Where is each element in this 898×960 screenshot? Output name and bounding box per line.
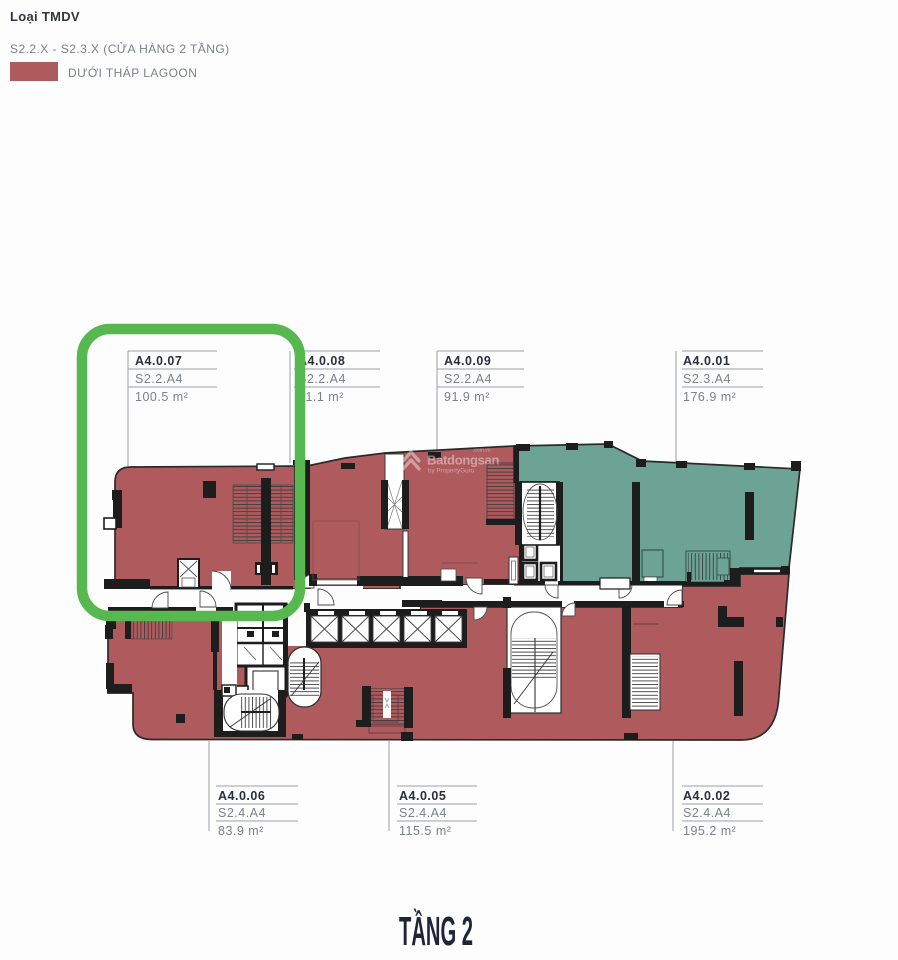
svg-text:S2.2.A4: S2.2.A4 — [135, 372, 183, 386]
svg-text:S2.2.X - S2.3.X (CỬA HÀNG 2 TẦ: S2.2.X - S2.3.X (CỬA HÀNG 2 TẦNG) — [10, 41, 230, 56]
svg-text:Loại TMDV: Loại TMDV — [10, 9, 80, 24]
svg-text:A4.0.01: A4.0.01 — [683, 354, 730, 368]
svg-text:S2.4.A4: S2.4.A4 — [683, 806, 731, 820]
svg-text:115.5 m²: 115.5 m² — [399, 824, 451, 838]
svg-text:by PropertyGuru: by PropertyGuru — [428, 468, 475, 475]
svg-text:TẦNG 2: TẦNG 2 — [399, 908, 473, 954]
svg-text:A4.0.06: A4.0.06 — [218, 789, 265, 803]
svg-text:195.2 m²: 195.2 m² — [683, 824, 736, 838]
svg-text:Batdongsan: Batdongsan — [427, 453, 499, 468]
svg-text:S2.2.A4: S2.2.A4 — [444, 372, 492, 386]
svg-text:S2.4.A4: S2.4.A4 — [218, 806, 266, 820]
svg-text:176.9 m²: 176.9 m² — [683, 390, 736, 404]
svg-text:A4.0.02: A4.0.02 — [683, 789, 730, 803]
svg-text:A4.0.09: A4.0.09 — [444, 354, 491, 368]
svg-text:S2.3.A4: S2.3.A4 — [683, 372, 731, 386]
svg-text:A4.0.07: A4.0.07 — [135, 354, 182, 368]
svg-text:100.5 m²: 100.5 m² — [135, 390, 188, 404]
svg-text:.com.vn: .com.vn — [473, 448, 491, 454]
svg-text:S2.4.A4: S2.4.A4 — [399, 806, 447, 820]
svg-text:A4.0.05: A4.0.05 — [399, 789, 446, 803]
svg-text:83.9 m²: 83.9 m² — [218, 824, 264, 838]
svg-text:91.9 m²: 91.9 m² — [444, 390, 490, 404]
svg-text:DƯỚI THÁP LAGOON: DƯỚI THÁP LAGOON — [68, 65, 197, 80]
